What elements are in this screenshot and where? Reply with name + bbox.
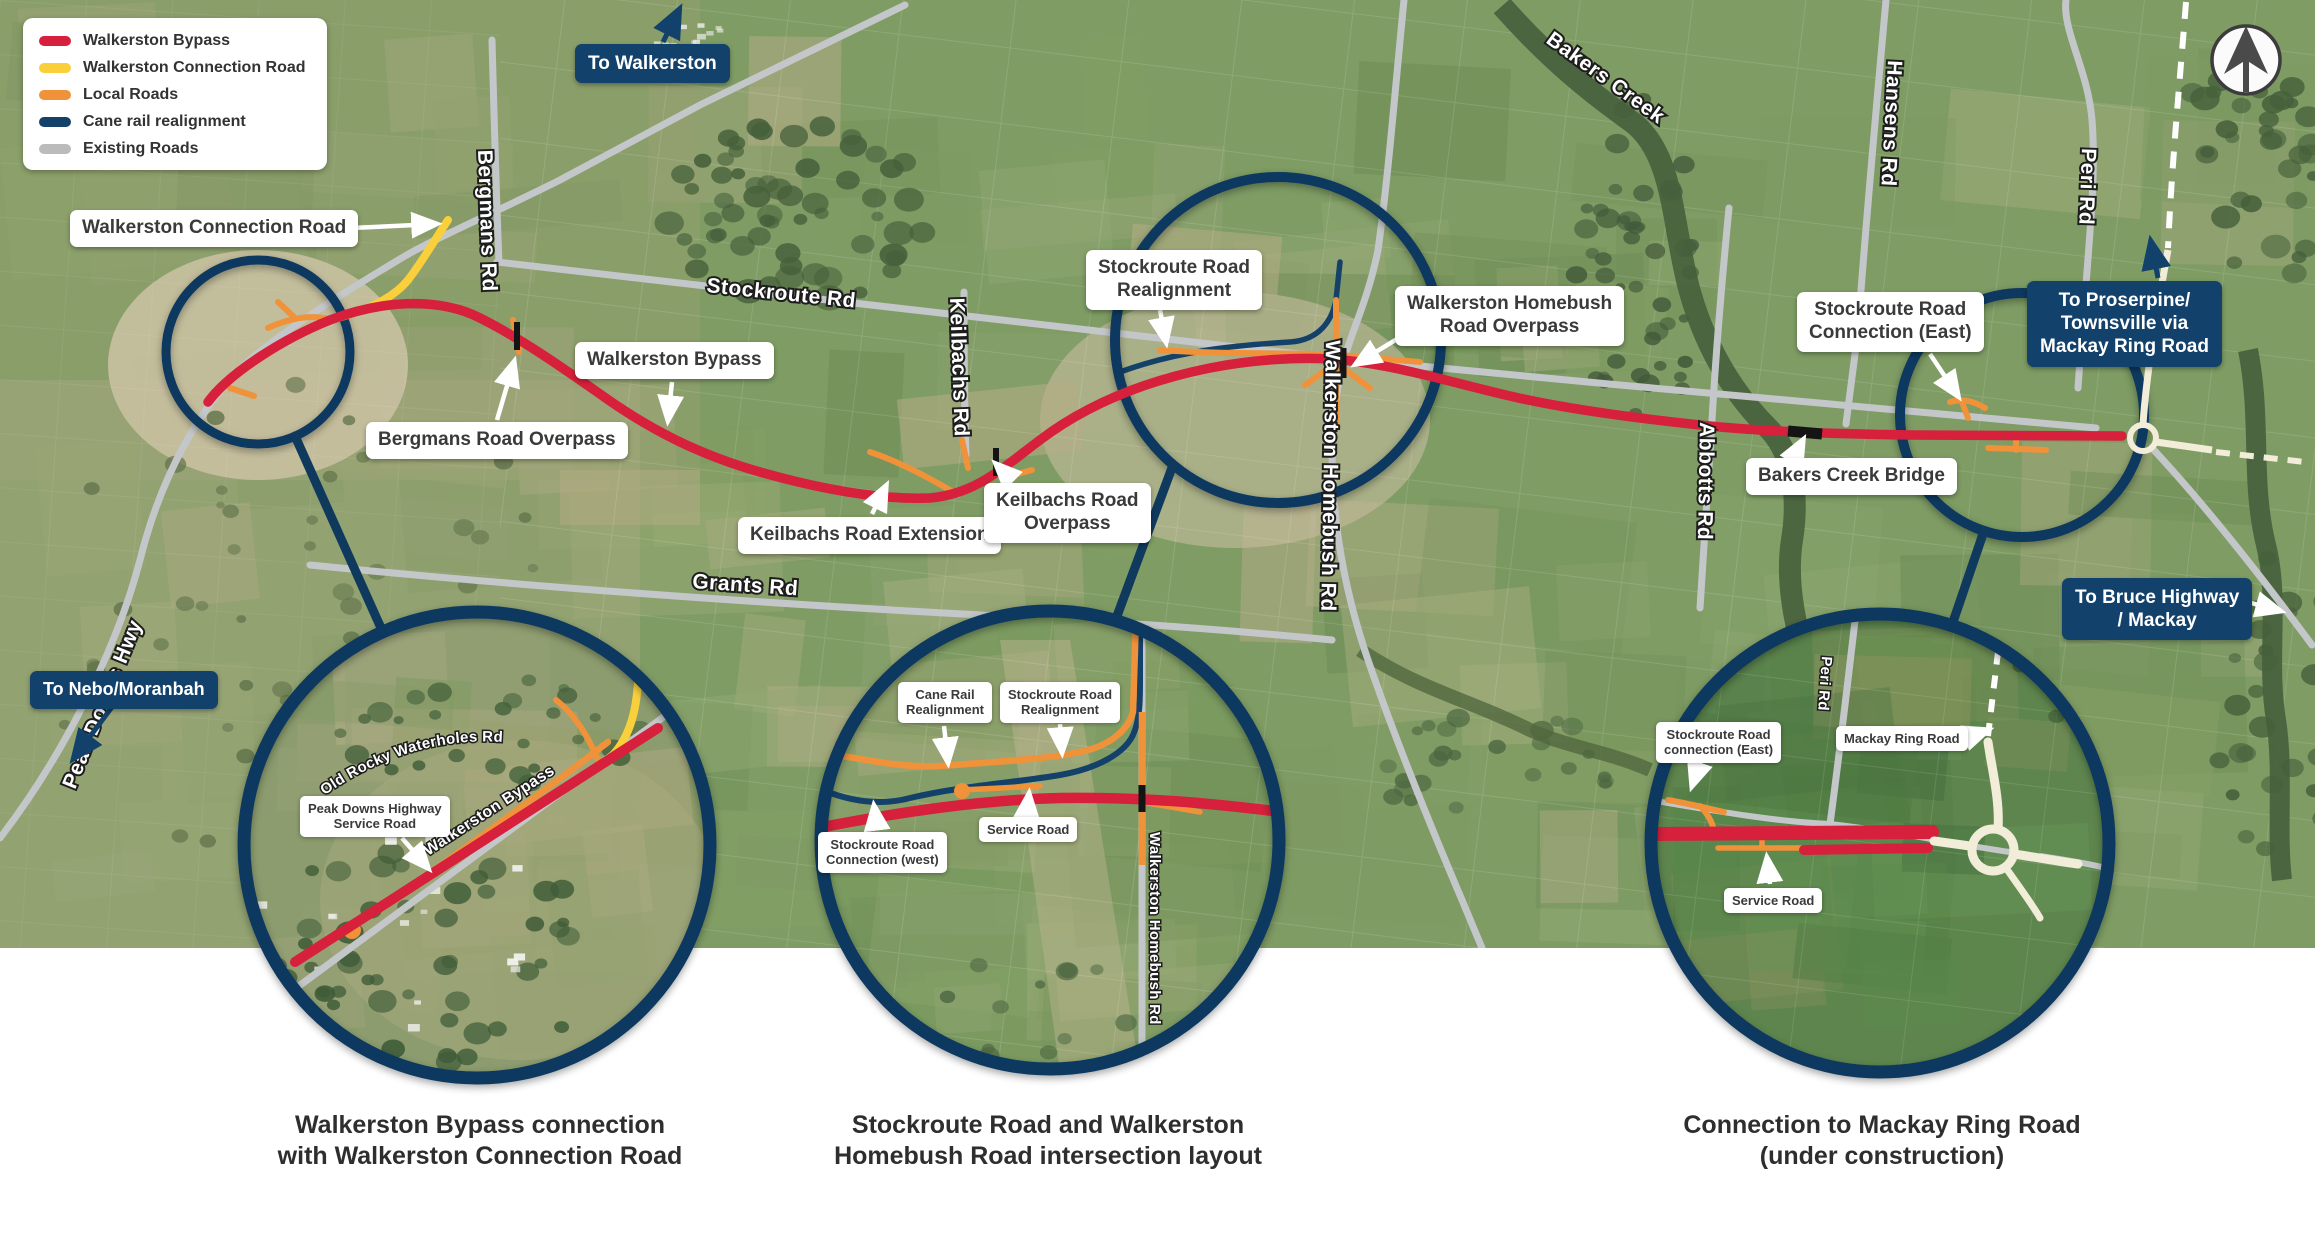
legend-label: Local Roads (83, 86, 178, 104)
arrow-inset2-service-road (1027, 794, 1029, 814)
legend-swatch-existing-roads (39, 144, 71, 154)
caption-line: Stockroute Road and Walkerston (834, 1110, 1262, 1141)
legend-swatch-bypass (39, 36, 71, 46)
callout-stockroute-road-realignment: Stockroute Road Realignment (1086, 250, 1262, 310)
road-label-abbotts-rd: Abbotts Rd (1693, 422, 1718, 541)
callout-bergmans-road-overpass: Bergmans Road Overpass (366, 422, 628, 459)
legend-item: Cane rail realignment (39, 113, 311, 131)
road-label-walkerston-homebush-rd: Walkerston Homebush Rd (1316, 340, 1344, 612)
inset2-callout-cane-rail-realignment: Cane Rail Realignment (898, 682, 992, 723)
direction-line: / Mackay (2075, 609, 2239, 632)
callout-line: Service Road (308, 816, 442, 831)
legend-item: Existing Roads (39, 140, 311, 158)
direction-line: To Proserpine/ (2040, 289, 2209, 312)
direction-label-to-walkerston: To Walkerston (575, 44, 730, 83)
arrow-inset2-stockroute (1060, 724, 1062, 752)
legend-swatch-local-roads (39, 90, 71, 100)
inset2-callout-connection-west: Stockroute Road Connection (west) (818, 832, 947, 873)
direction-line: Mackay Ring Road (2040, 335, 2209, 358)
callout-line: Road Overpass (1407, 316, 1612, 339)
callout-line: Stockroute Road (1664, 727, 1773, 742)
callout-line: Stockroute Road (1809, 299, 1972, 322)
caption-inset2: Stockroute Road and Walkerston Homebush … (834, 1110, 1262, 1171)
inset3-callout-service-road: Service Road (1724, 888, 1822, 913)
bakers-creek-bridge-mark (1788, 431, 1822, 434)
callout-line: Walkerston Homebush (1407, 293, 1612, 316)
callout-line: Stockroute Road (826, 837, 939, 852)
road-label-peri-rd: Peri Rd (2074, 148, 2100, 226)
direction-line: Townsville via (2040, 312, 2209, 335)
inset2-homebush-label: Walkerston Homebush Rd (1146, 832, 1163, 1025)
direction-label-to-proserpine: To Proserpine/ Townsville via Mackay Rin… (2027, 281, 2222, 367)
inset1-callout-peak-downs-service-road: Peak Downs Highway Service Road (300, 796, 450, 837)
callout-walkerston-connection-road: Walkerston Connection Road (70, 210, 358, 247)
caption-inset3: Connection to Mackay Ring Road (under co… (1683, 1110, 2080, 1171)
direction-line: To Bruce Highway (2075, 586, 2239, 609)
inset2-callout-service-road: Service Road (979, 817, 1077, 842)
direction-label-to-nebo: To Nebo/Moranbah (30, 671, 218, 709)
callout-line: connection (East) (1664, 742, 1773, 757)
callout-keilbachs-road-extension: Keilbachs Road Extension (738, 517, 1001, 554)
callout-line: Connection (west) (826, 852, 939, 867)
inset3-callout-connection-east: Stockroute Road connection (East) (1656, 722, 1781, 763)
caption-line: (under construction) (1683, 1141, 2080, 1172)
caption-line: Walkerston Bypass connection (278, 1110, 683, 1141)
callout-line: Stockroute Road (1008, 687, 1112, 702)
callout-line: Realignment (1098, 280, 1250, 303)
callout-walkerston-bypass: Walkerston Bypass (575, 342, 774, 379)
inset2-callout-stockroute-realignment: Stockroute Road Realignment (1000, 682, 1120, 723)
callout-line: Stockroute Road (1098, 257, 1250, 280)
callout-line: Realignment (1008, 702, 1112, 717)
callout-line: Connection (East) (1809, 322, 1972, 345)
callout-bakers-creek-bridge: Bakers Creek Bridge (1746, 458, 1957, 495)
arrow-inset3-service-road (1767, 858, 1770, 884)
caption-line: Connection to Mackay Ring Road (1683, 1110, 2080, 1141)
caption-line: Homebush Road intersection layout (834, 1141, 1262, 1172)
legend-swatch-cane-rail (39, 117, 71, 127)
caption-line: with Walkerston Connection Road (278, 1141, 683, 1172)
callout-keilbachs-road-overpass: Keilbachs Road Overpass (984, 483, 1151, 543)
direction-label-to-bruce: To Bruce Highway / Mackay (2062, 578, 2252, 640)
legend-label: Walkerston Bypass (83, 32, 230, 50)
legend-label: Walkerston Connection Road (83, 59, 306, 77)
callout-line: Cane Rail (906, 687, 984, 702)
legend-item: Walkerston Bypass (39, 32, 311, 50)
legend-swatch-connection-road (39, 63, 71, 73)
legend-item: Walkerston Connection Road (39, 59, 311, 77)
legend: Walkerston Bypass Walkerston Connection … (23, 18, 327, 170)
callout-line: Overpass (996, 513, 1139, 536)
legend-item: Local Roads (39, 86, 311, 104)
callout-walkerston-homebush-road-overpass: Walkerston Homebush Road Overpass (1395, 286, 1624, 346)
callout-line: Peak Downs Highway (308, 801, 442, 816)
callout-line: Keilbachs Road (996, 490, 1139, 513)
callout-stockroute-road-connection-east: Stockroute Road Connection (East) (1797, 292, 1984, 352)
road-label-keilbachs-rd: Keilbachs Rd (945, 297, 973, 437)
north-compass-icon (2212, 26, 2280, 94)
caption-inset1: Walkerston Bypass connection with Walker… (278, 1110, 683, 1171)
legend-label: Existing Roads (83, 140, 199, 158)
legend-label: Cane rail realignment (83, 113, 246, 131)
callout-line: Realignment (906, 702, 984, 717)
arrow-inset2-connection-west (874, 806, 877, 830)
inset3-callout-mackay-ring-road: Mackay Ring Road (1836, 726, 1968, 751)
project-map: Peak Downs Hwy Bergmans Rd Stockroute Rd… (0, 0, 2315, 1241)
map-drawing: Peak Downs Hwy Bergmans Rd Stockroute Rd… (0, 0, 2315, 1241)
